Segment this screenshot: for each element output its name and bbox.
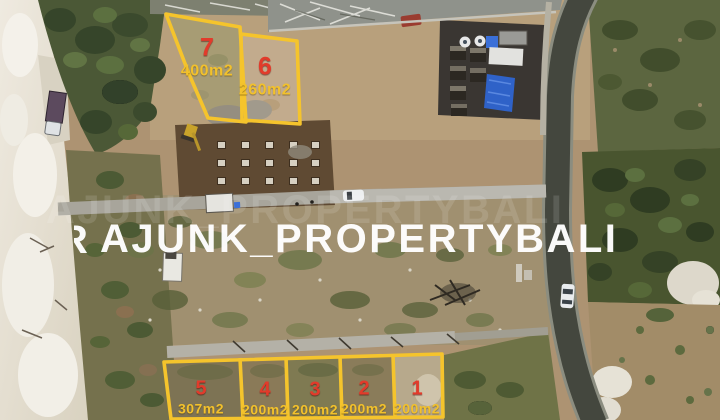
plot-divider-2-1 [393,355,395,417]
field-top-right [588,0,720,152]
white-hut [163,250,183,282]
blue-tarp-small [486,36,498,48]
construction-yard-right [438,20,545,120]
field-bottom-right [587,302,720,420]
utility-structure [516,264,522,282]
blue-tarp-large [484,74,515,112]
photo-background [0,0,720,420]
white-car [343,189,365,201]
plot-divider-3-2 [340,356,342,417]
plot-divider-4-3 [286,357,288,418]
white-roof [489,47,524,66]
aerial-photo: AJUNK_PROPERTYBALI 7 400m2 6 260m2 5 307… [0,0,720,420]
white-car [560,284,575,309]
gray-container [499,31,527,45]
tree-band-right [582,148,720,325]
